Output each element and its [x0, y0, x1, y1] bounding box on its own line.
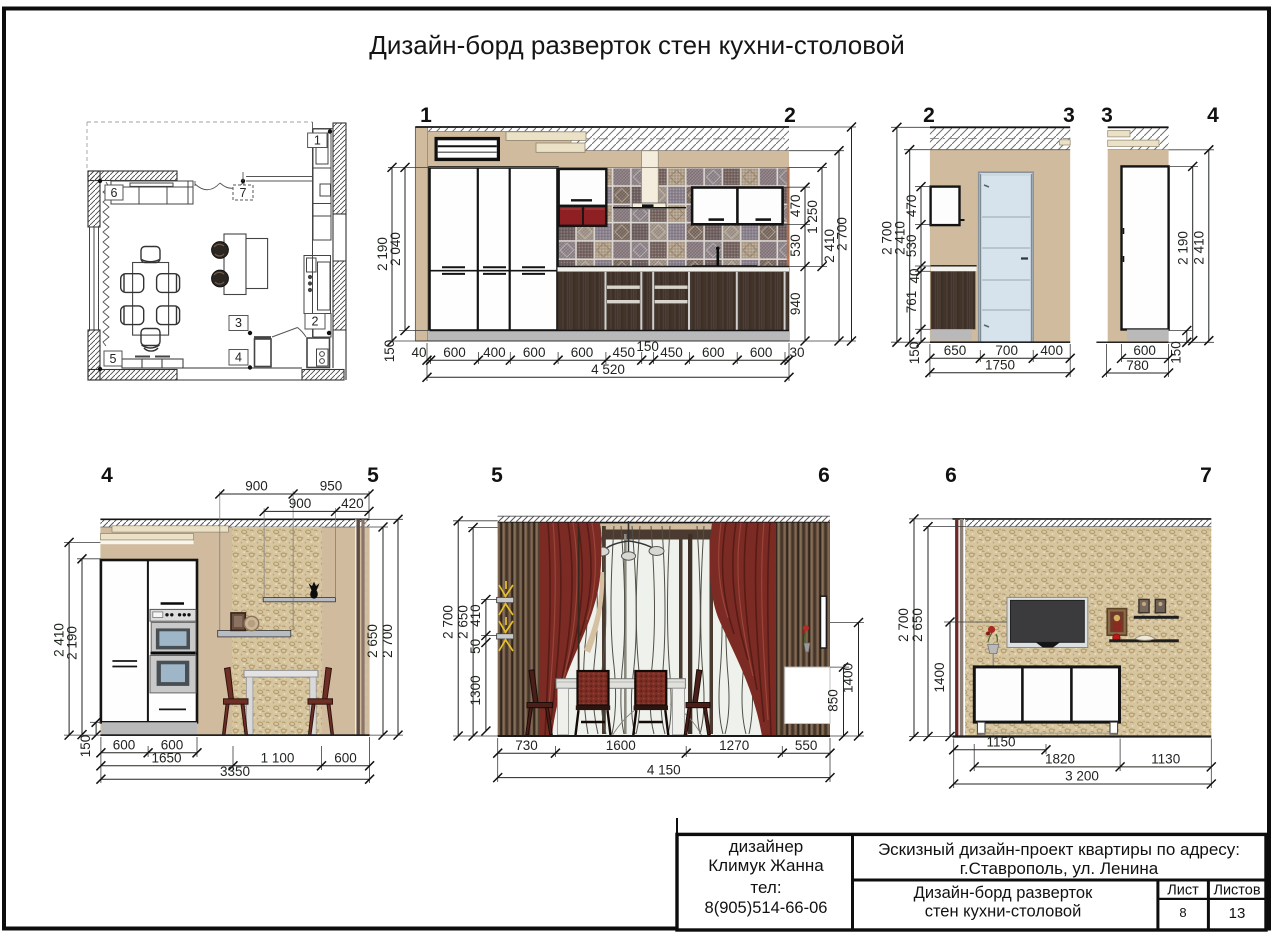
- svg-text:40: 40: [907, 268, 922, 283]
- svg-text:4 520: 4 520: [591, 362, 625, 377]
- svg-text:2 190: 2 190: [1175, 231, 1190, 265]
- svg-text:730: 730: [515, 738, 538, 753]
- svg-text:600: 600: [571, 345, 594, 360]
- svg-text:1 250: 1 250: [805, 200, 820, 234]
- svg-text:6: 6: [945, 464, 957, 487]
- svg-text:600: 600: [113, 738, 136, 753]
- svg-text:8(905)514-66-06: 8(905)514-66-06: [705, 899, 828, 917]
- svg-text:400: 400: [1040, 343, 1063, 358]
- svg-text:50: 50: [468, 639, 483, 654]
- svg-text:Дизайн-борд разверток: Дизайн-борд разверток: [914, 884, 1093, 902]
- svg-text:5: 5: [491, 464, 503, 487]
- svg-text:850: 850: [826, 689, 841, 712]
- svg-text:стен кухни-столовой: стен кухни-столовой: [925, 903, 1082, 921]
- svg-text:2: 2: [923, 104, 935, 127]
- svg-text:1600: 1600: [606, 738, 636, 753]
- svg-text:530: 530: [904, 235, 919, 258]
- svg-text:7: 7: [1200, 464, 1212, 487]
- svg-text:Эскизный дизайн-проект кварти: Эскизный дизайн-проект квартиры по адрес…: [878, 840, 1240, 859]
- svg-text:450: 450: [660, 345, 683, 360]
- svg-text:дизайнер: дизайнер: [729, 837, 803, 856]
- svg-text:600: 600: [1133, 343, 1156, 358]
- svg-text:700: 700: [995, 343, 1018, 358]
- svg-text:450: 450: [613, 345, 636, 360]
- svg-text:1750: 1750: [985, 358, 1015, 373]
- svg-text:2: 2: [312, 315, 319, 329]
- svg-text:2 700: 2 700: [440, 605, 455, 639]
- svg-text:4 150: 4 150: [647, 762, 681, 777]
- svg-text:тел:: тел:: [750, 878, 781, 897]
- svg-text:6: 6: [111, 186, 118, 200]
- svg-text:3: 3: [1063, 104, 1075, 127]
- svg-text:2 700: 2 700: [896, 608, 911, 642]
- svg-text:Климук Жанна: Климук Жанна: [708, 856, 824, 875]
- svg-text:530: 530: [788, 234, 803, 257]
- svg-text:4: 4: [101, 464, 113, 487]
- svg-text:1300: 1300: [468, 675, 483, 705]
- svg-text:1130: 1130: [1151, 752, 1180, 767]
- svg-text:410: 410: [468, 604, 483, 627]
- svg-text:470: 470: [788, 195, 803, 218]
- svg-text:1270: 1270: [719, 738, 749, 753]
- svg-text:3 200: 3 200: [1065, 769, 1099, 784]
- svg-text:2 650: 2 650: [910, 608, 925, 642]
- svg-text:420: 420: [341, 496, 364, 511]
- svg-text:1 100: 1 100: [261, 750, 295, 765]
- svg-text:2 700: 2 700: [380, 624, 395, 658]
- svg-text:Лист: Лист: [1167, 883, 1199, 899]
- svg-text:761: 761: [904, 291, 919, 314]
- svg-text:1400: 1400: [932, 662, 947, 692]
- svg-text:2 700: 2 700: [835, 217, 850, 251]
- svg-text:150: 150: [1169, 341, 1184, 364]
- svg-text:1150: 1150: [986, 735, 1015, 750]
- svg-text:13: 13: [1229, 905, 1246, 922]
- svg-text:3: 3: [235, 316, 242, 330]
- svg-text:940: 940: [788, 293, 803, 316]
- svg-text:1820: 1820: [1045, 752, 1075, 767]
- svg-text:6: 6: [818, 464, 830, 487]
- svg-text:150: 150: [382, 340, 397, 363]
- svg-text:2 040: 2 040: [388, 232, 403, 266]
- svg-text:600: 600: [334, 750, 357, 765]
- svg-text:600: 600: [702, 345, 725, 360]
- svg-text:7: 7: [240, 186, 247, 200]
- svg-text:1: 1: [420, 104, 432, 127]
- svg-text:900: 900: [245, 479, 268, 494]
- svg-text:г.Ставрополь, ул. Ленина: г.Ставрополь, ул. Ленина: [960, 859, 1159, 878]
- svg-text:4: 4: [1207, 104, 1219, 127]
- svg-text:550: 550: [795, 738, 818, 753]
- svg-text:150: 150: [78, 735, 93, 758]
- svg-text:470: 470: [904, 195, 919, 218]
- svg-text:150: 150: [636, 339, 659, 354]
- svg-text:1: 1: [314, 134, 321, 148]
- svg-text:5: 5: [367, 464, 379, 487]
- svg-text:950: 950: [320, 479, 343, 494]
- svg-text:40: 40: [411, 345, 426, 360]
- svg-text:600: 600: [750, 345, 773, 360]
- svg-text:8: 8: [1179, 905, 1186, 920]
- svg-text:Листов: Листов: [1213, 883, 1260, 899]
- svg-text:2 410: 2 410: [1191, 231, 1206, 265]
- svg-text:5: 5: [110, 352, 117, 366]
- svg-text:2: 2: [784, 104, 796, 127]
- svg-text:900: 900: [289, 496, 312, 511]
- svg-text:Дизайн-борд разверток стен кух: Дизайн-борд разверток стен кухни-столово…: [369, 30, 905, 60]
- svg-text:2 650: 2 650: [365, 624, 380, 658]
- svg-text:3: 3: [1101, 104, 1113, 127]
- svg-text:150: 150: [907, 342, 922, 365]
- svg-text:600: 600: [523, 345, 546, 360]
- svg-text:4: 4: [235, 351, 242, 365]
- svg-text:650: 650: [944, 343, 967, 358]
- svg-text:3350: 3350: [220, 764, 250, 779]
- svg-text:400: 400: [483, 345, 506, 360]
- svg-text:600: 600: [443, 345, 466, 360]
- svg-text:30: 30: [789, 345, 804, 360]
- svg-text:1400: 1400: [841, 663, 856, 693]
- svg-text:2 190: 2 190: [64, 626, 79, 660]
- svg-text:780: 780: [1126, 358, 1149, 373]
- svg-text:1650: 1650: [151, 750, 181, 765]
